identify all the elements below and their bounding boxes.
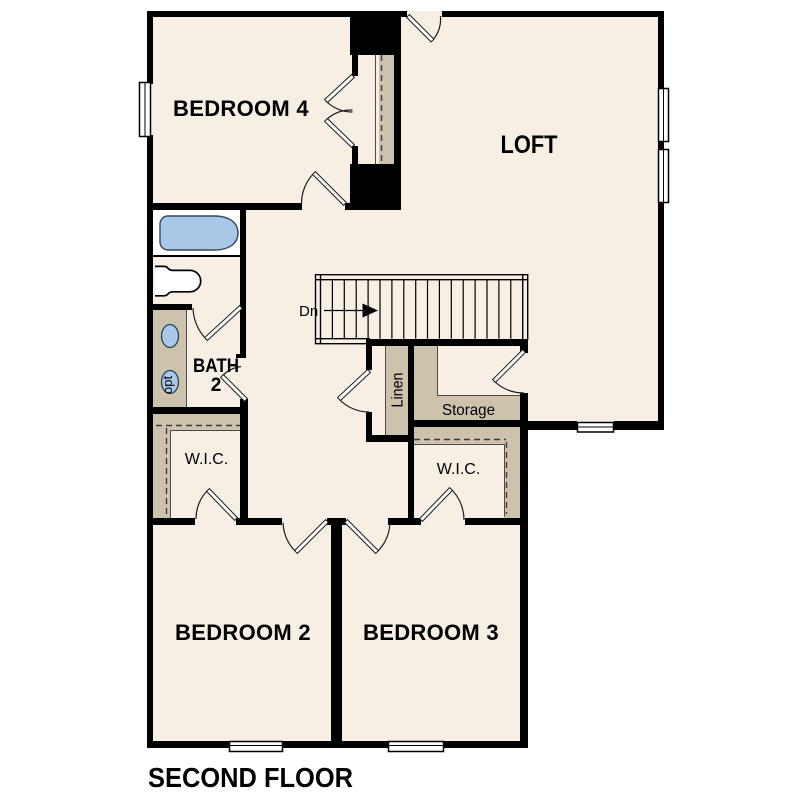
svg-text:BEDROOM 2: BEDROOM 2 (175, 620, 311, 645)
svg-text:SECOND FLOOR: SECOND FLOOR (148, 762, 353, 793)
svg-text:BATH: BATH (193, 356, 239, 377)
svg-text:Dn: Dn (299, 303, 318, 320)
svg-text:W.I.C.: W.I.C. (437, 461, 481, 478)
svg-text:BEDROOM 4: BEDROOM 4 (173, 96, 309, 121)
svg-text:LOFT: LOFT (501, 131, 558, 159)
svg-text:opt: opt (160, 376, 175, 394)
svg-text:2: 2 (211, 375, 222, 396)
svg-text:BEDROOM 3: BEDROOM 3 (363, 620, 499, 645)
svg-text:Storage: Storage (442, 402, 495, 419)
svg-text:Linen: Linen (390, 373, 407, 408)
svg-text:W.I.C.: W.I.C. (185, 451, 229, 468)
